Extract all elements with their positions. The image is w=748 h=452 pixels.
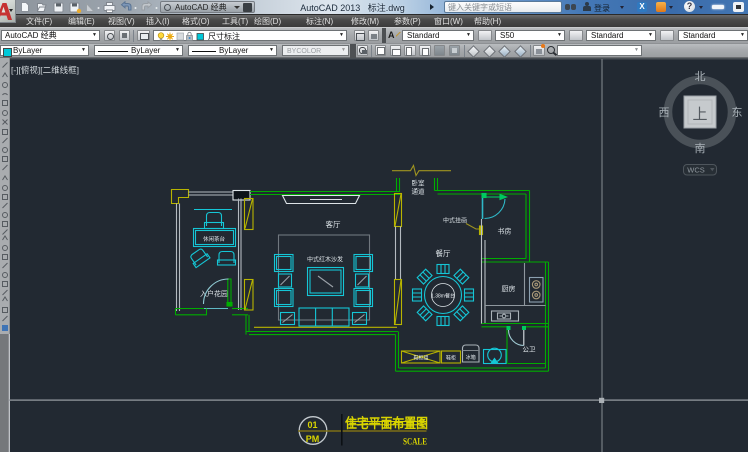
svg-text:[-][俯视][二维线框]: [-][俯视][二维线框]	[11, 65, 79, 75]
svg-text:东: 东	[732, 106, 743, 119]
svg-text:南: 南	[695, 142, 706, 155]
svg-text:休闲茶台: 休闲茶台	[203, 235, 226, 243]
svg-text:WCS: WCS	[687, 166, 705, 175]
svg-text:西: 西	[659, 107, 670, 119]
svg-text:鞋柜组: 鞋柜组	[413, 355, 428, 362]
svg-text:1.38m餐台: 1.38m餐台	[431, 293, 455, 300]
svg-text:01: 01	[307, 420, 317, 430]
svg-text:卧室: 卧室	[412, 178, 426, 187]
svg-text:PM: PM	[306, 434, 320, 444]
svg-text:厨房: 厨房	[502, 284, 516, 293]
svg-text:书房: 书房	[498, 227, 512, 236]
svg-text:公卫: 公卫	[523, 346, 537, 354]
svg-text:中式挂画: 中式挂画	[443, 217, 467, 225]
svg-text:上: 上	[692, 106, 707, 123]
svg-text:SCALE: SCALE	[403, 438, 427, 448]
svg-text:餐厅: 餐厅	[436, 249, 451, 258]
svg-text:客厅: 客厅	[326, 219, 341, 229]
svg-text:北: 北	[695, 70, 706, 83]
svg-text:鞋柜: 鞋柜	[446, 355, 456, 362]
svg-text:冰箱: 冰箱	[466, 354, 476, 361]
svg-text:通道: 通道	[412, 187, 426, 196]
svg-text:中式红木沙发: 中式红木沙发	[307, 256, 343, 264]
